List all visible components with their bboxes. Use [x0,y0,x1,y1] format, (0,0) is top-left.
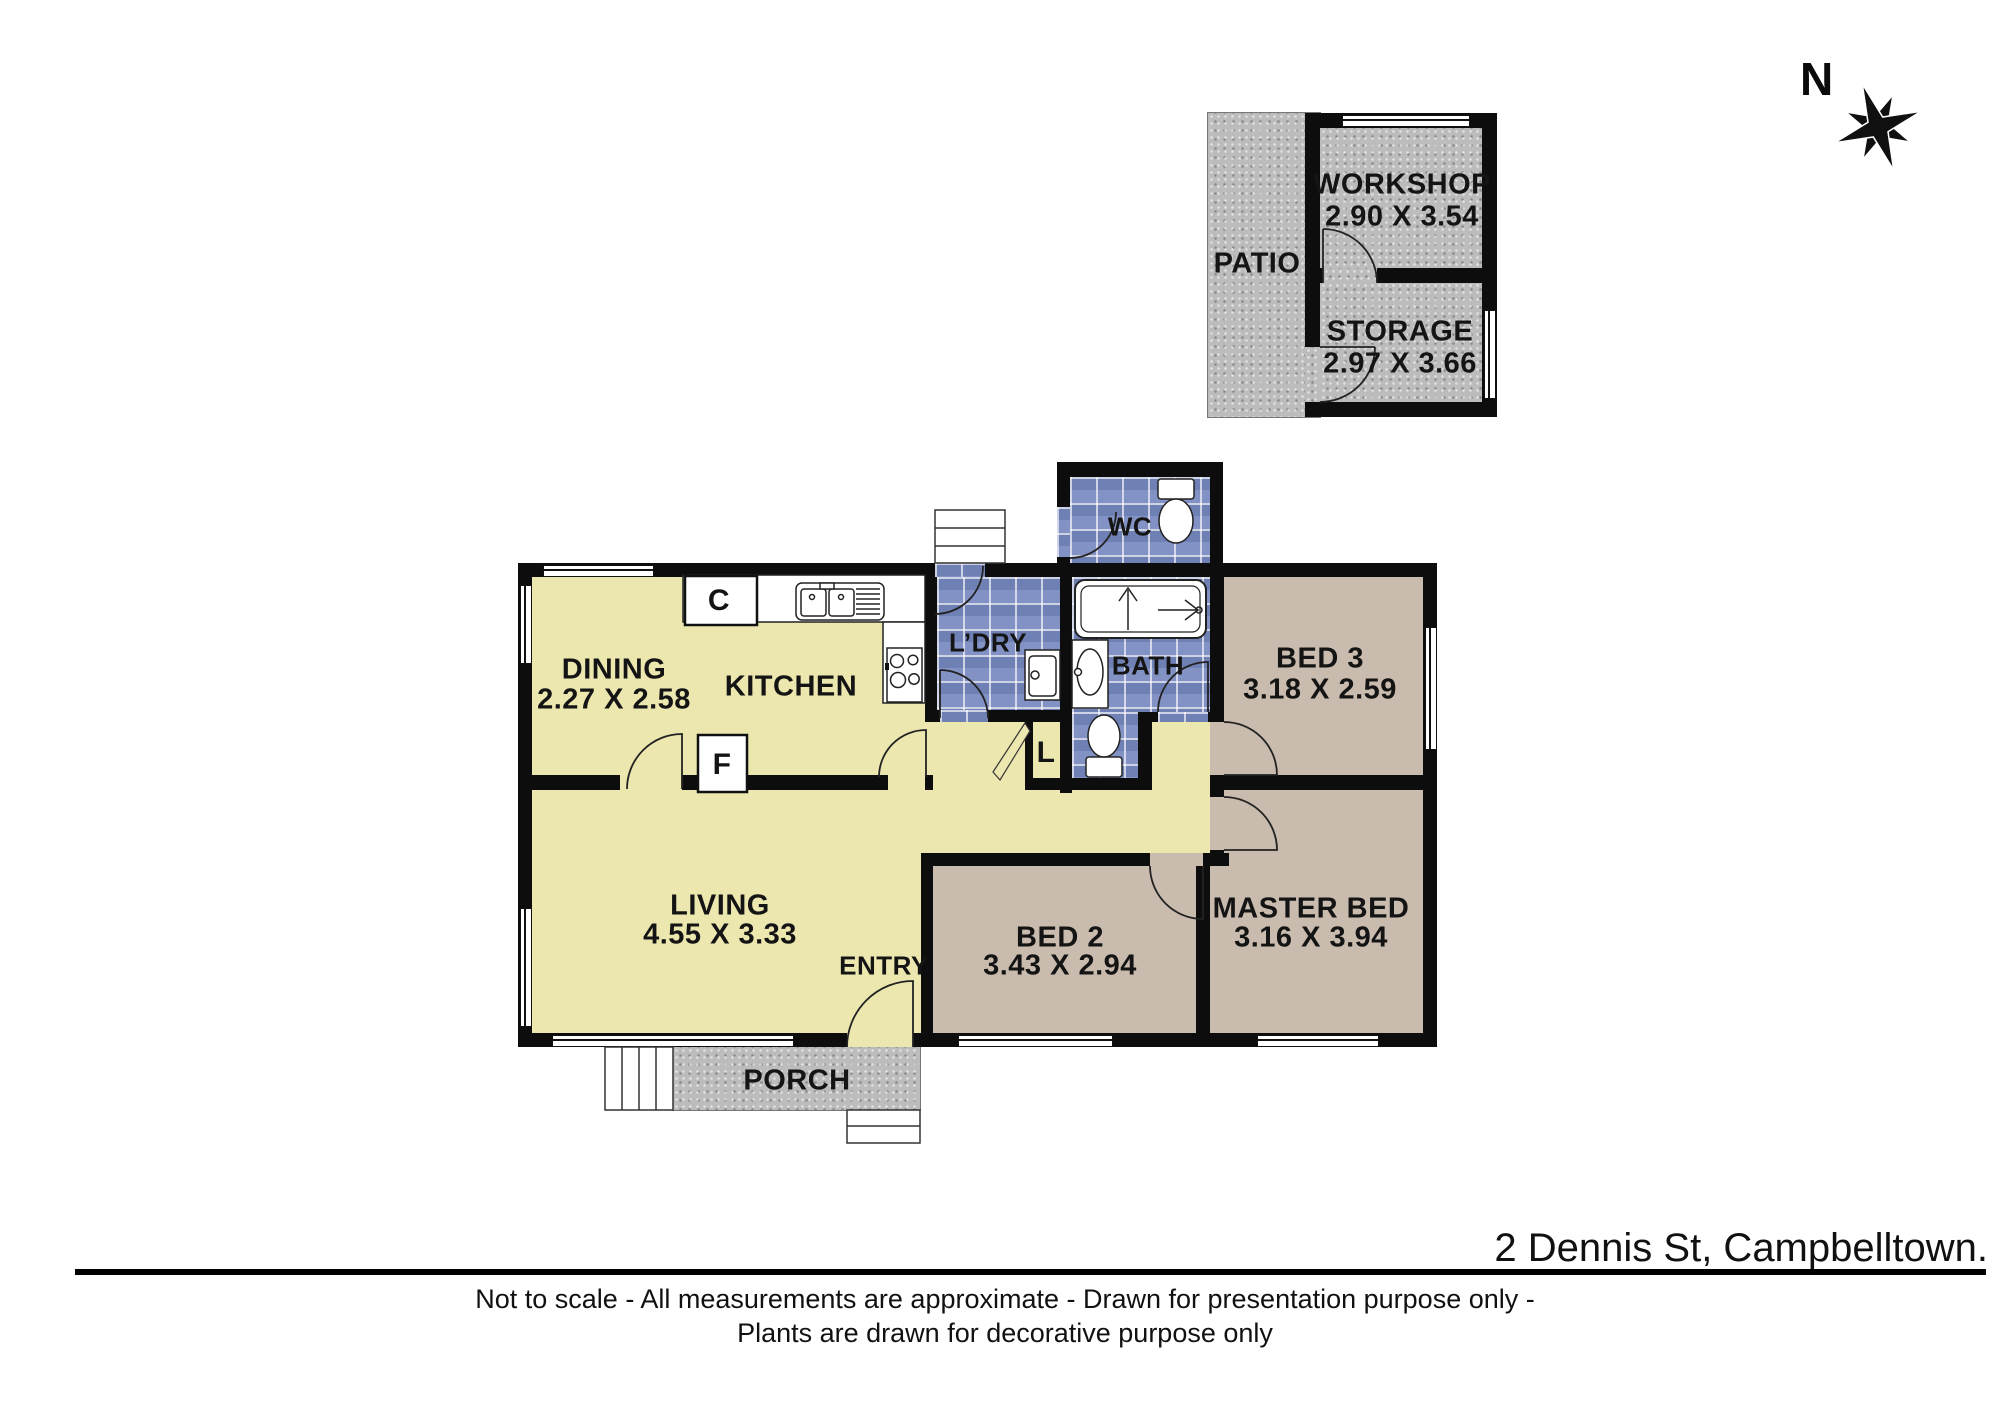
compass-rose [1835,84,1921,170]
floorplan-page: N PATIO WORKSHOP 2.90 X 3.54 STORAGE 2.9… [0,0,2000,1413]
storage-label: STORAGE [1327,316,1473,349]
back-steps [935,510,1005,563]
divider-rule [75,1269,1986,1275]
laundry-label: L’DRY [949,628,1027,659]
linen-door-leaf [993,723,1030,780]
bathtub [1075,580,1206,638]
bed3-label: BED 3 [1276,643,1364,676]
bath-label: BATH [1112,651,1184,682]
wc-label: WC [1108,512,1152,543]
workshop-label: WORKSHOP [1313,169,1491,202]
bath-vanity-sink [1072,640,1108,708]
entry-label: ENTRY [839,951,929,982]
linen-l-label: L [1037,736,1056,770]
stove-cooktop [885,648,922,702]
living-dims: 4.55 X 3.33 [643,919,797,952]
bed3-dims: 3.18 X 2.59 [1243,674,1397,707]
bed2-door-arc [1150,866,1203,919]
wc-toilet [1158,479,1194,543]
bed3-door-arc [1224,722,1277,775]
disclaimer-line-1: Not to scale - All measurements are appr… [275,1284,1735,1315]
porch-side-steps [605,1047,673,1110]
patio-label: PATIO [1214,248,1301,281]
cupboard-c-label: C [708,584,730,618]
kitchen-door-arc [879,730,926,777]
fixtures-overlay [0,0,2000,1413]
master-dims: 3.16 X 3.94 [1234,922,1388,955]
back-door-arc [935,566,983,614]
disclaimer-line-2: Plants are drawn for decorative purpose … [275,1318,1735,1349]
compass-north-label: N [1800,52,1833,106]
fridge-f-label: F [713,748,732,782]
dining-door-arc [627,734,682,789]
laundry-door-arc [940,670,988,718]
porch-front-steps [847,1110,920,1143]
bed2-dims: 3.43 X 2.94 [983,950,1137,983]
storage-dims: 2.97 X 3.66 [1323,348,1477,381]
laundry-tub [1025,650,1060,700]
kitchen-sink [796,583,884,620]
dining-dims: 2.27 X 2.58 [537,684,691,717]
dining-label: DINING [562,654,667,687]
kitchen-label: KITCHEN [725,671,857,704]
workshop-dims: 2.90 X 3.54 [1325,201,1479,234]
bath-toilet [1086,715,1122,777]
porch-label: PORCH [743,1065,850,1098]
master-door-arc [1224,797,1277,850]
entry-door-arc [847,981,913,1047]
workshop-door-arc [1323,229,1377,283]
address-title: 2 Dennis St, Campbelltown. [1000,1226,1988,1271]
